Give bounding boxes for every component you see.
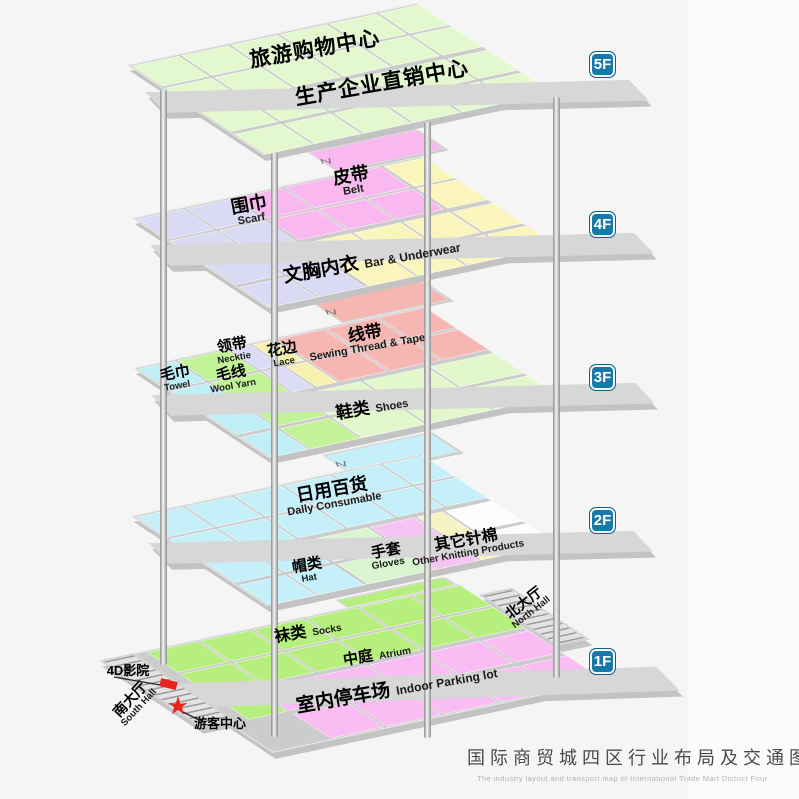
area-label-towel: 毛巾 Towel	[159, 363, 193, 394]
break-mark-icon	[320, 307, 344, 317]
background-strip	[688, 0, 799, 799]
area-label-hat: 帽类 Hat	[291, 555, 325, 586]
support-pillar	[424, 122, 431, 738]
break-mark-icon	[315, 156, 339, 166]
visitor-center-star-icon	[169, 696, 188, 714]
floor-badge-4f: 4F	[589, 211, 616, 238]
map-caption: 国际商贸城四区行业布局及交通图 The industry layout and …	[467, 744, 799, 783]
floor-badge-1f: 1F	[589, 648, 616, 675]
cinema-marker-icon	[159, 678, 177, 690]
trade-mart-floor-diagram: 旅游购物中心 生产企业直销中心 围巾 Scarf 皮带 Belt 文胸内衣Bar…	[0, 0, 799, 799]
support-pillar	[553, 97, 560, 678]
poi-annotation-overlay	[88, 648, 298, 748]
caption-title: 国际商贸城四区行业布局及交通图	[467, 744, 799, 770]
caption-subtitle: The industry layout and transport map of…	[467, 774, 799, 783]
area-label-gloves: 手套 Gloves	[368, 541, 406, 573]
area-label-belt: 皮带 Belt	[332, 163, 373, 200]
leader-line	[183, 712, 205, 723]
area-label-lace: 花边 Lace	[266, 339, 300, 370]
leader-line	[114, 677, 166, 686]
floor-badge-2f: 2F	[589, 507, 616, 534]
area-label-scarf: 围巾 Scarf	[230, 192, 271, 229]
break-mark-icon	[330, 459, 354, 469]
floor-badge-5f: 5F	[589, 51, 616, 78]
floor-badge-3f: 3F	[589, 364, 616, 391]
